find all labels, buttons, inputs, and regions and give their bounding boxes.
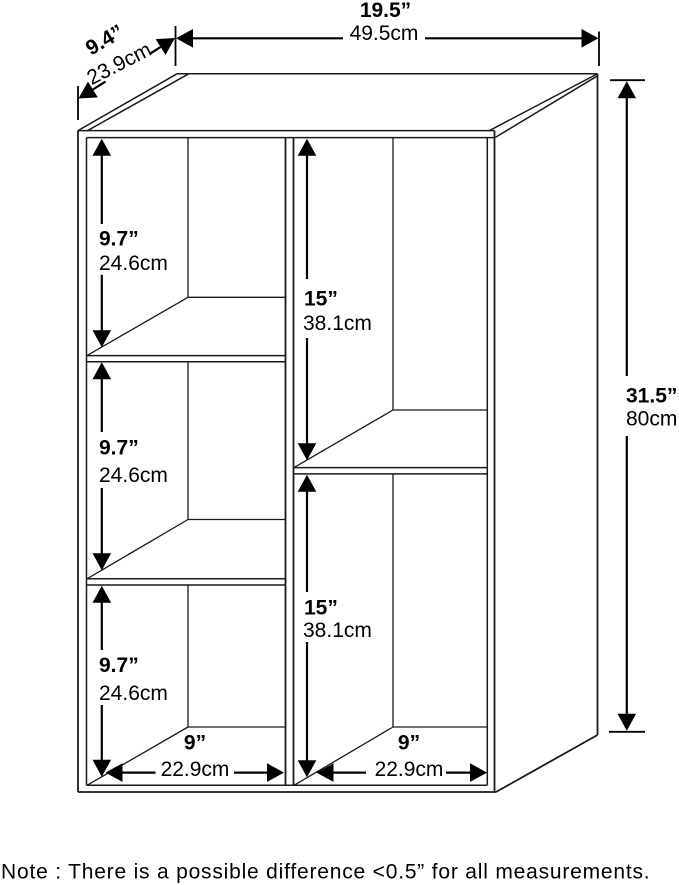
svg-text:49.5cm: 49.5cm bbox=[350, 22, 419, 45]
svg-text:22.9cm: 22.9cm bbox=[375, 758, 444, 781]
svg-text:Note : There is a possible dif: Note : There is a possible difference <0… bbox=[1, 861, 650, 884]
svg-text:9”: 9” bbox=[398, 732, 420, 755]
svg-text:24.6cm: 24.6cm bbox=[99, 252, 168, 275]
svg-text:9.7”: 9.7” bbox=[99, 228, 139, 251]
svg-text:9”: 9” bbox=[184, 732, 206, 755]
svg-text:24.6cm: 24.6cm bbox=[99, 464, 168, 487]
svg-text:9.7”: 9.7” bbox=[99, 654, 139, 677]
svg-text:22.9cm: 22.9cm bbox=[161, 758, 230, 781]
svg-text:9.7”: 9.7” bbox=[99, 437, 139, 460]
svg-text:31.5”: 31.5” bbox=[626, 385, 677, 408]
svg-text:24.6cm: 24.6cm bbox=[99, 682, 168, 705]
svg-text:80cm: 80cm bbox=[626, 408, 677, 431]
svg-text:38.1cm: 38.1cm bbox=[303, 312, 372, 335]
svg-text:15”: 15” bbox=[304, 597, 338, 620]
svg-text:19.5”: 19.5” bbox=[360, 0, 411, 22]
svg-text:15”: 15” bbox=[304, 288, 338, 311]
svg-text:38.1cm: 38.1cm bbox=[303, 619, 372, 642]
